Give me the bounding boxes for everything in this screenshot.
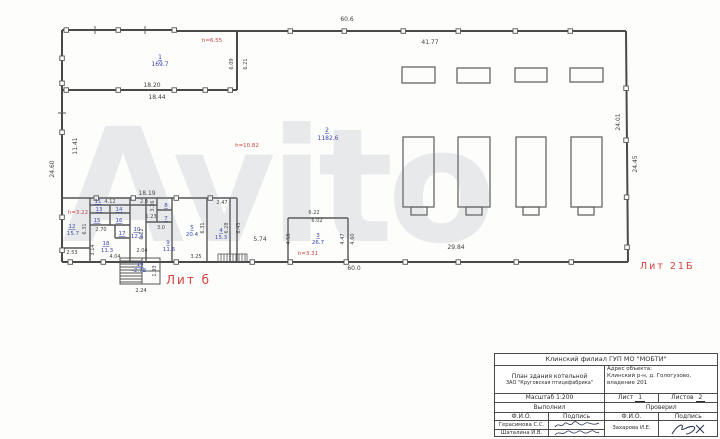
dim-label: 24.01 xyxy=(615,113,622,130)
doc-title-line1: План здания котельной xyxy=(512,373,588,381)
executor1-name: Герасимова С.С. xyxy=(495,421,549,430)
signature-label-left: Подпись xyxy=(549,413,605,421)
dim-label: 60.6 xyxy=(340,16,354,23)
dim-label: 2.24 xyxy=(135,288,146,294)
dim-label: 6.21 xyxy=(243,58,249,69)
fio-label-left: Ф.И.О. xyxy=(495,413,549,421)
fio-label-right: Ф.И.О. xyxy=(605,413,659,421)
executor2-name: Шаталина И.В. xyxy=(495,430,549,437)
signature-scribble-icon xyxy=(553,430,601,437)
performed-label: Выполнил xyxy=(495,403,605,413)
dim-label: 18.20 xyxy=(143,82,160,89)
lit-label-right: Лит 21Б xyxy=(640,261,694,272)
address-line1: Клинский р-н, д. Гологузово, xyxy=(607,373,691,380)
address-line2: владение 201 xyxy=(607,380,647,387)
dim-label: 24.45 xyxy=(632,155,639,172)
executor2-signature xyxy=(549,430,605,437)
address-label: Адрес объекта: xyxy=(607,366,652,373)
checker-name: Захарова И.Е. xyxy=(605,421,659,437)
title-block-address: Адрес объекта: Клинский р-н, д. Гологузо… xyxy=(605,366,718,394)
dim-label: 41.77 xyxy=(421,39,438,46)
room-area: 169.7 xyxy=(151,61,168,68)
checked-label: Проверил xyxy=(605,403,718,413)
signature-scribble-icon xyxy=(553,421,601,429)
checker-signature xyxy=(659,421,718,437)
signature-scribble-icon xyxy=(666,422,710,436)
dim-label: 6.09 xyxy=(229,58,235,69)
doc-title-line2: ЗАО "Круговская птицефабрика" xyxy=(506,380,593,386)
room-number: 1 xyxy=(158,54,162,61)
dim-label: 24.60 xyxy=(49,160,56,177)
title-block: Клинский филиал ГУП МО "МОБТИ" План здан… xyxy=(494,353,718,437)
watermark: Avito xyxy=(62,108,490,266)
sheets-value: 2 xyxy=(696,394,706,402)
sheets-label: Листов xyxy=(671,394,693,402)
sheet-cell: Лист 1 xyxy=(605,394,659,403)
sheet-value: 1 xyxy=(635,394,645,402)
height-label: h=6.55 xyxy=(202,38,223,44)
signature-label-right: Подпись xyxy=(659,413,718,421)
title-block-org: Клинский филиал ГУП МО "МОБТИ" xyxy=(495,354,717,366)
sheet-label: Лист xyxy=(618,394,633,402)
executor1-signature xyxy=(549,421,605,430)
scale-cell: Масштаб 1:200 xyxy=(495,394,605,403)
title-block-doc: План здания котельной ЗАО "Круговская пт… xyxy=(495,366,605,394)
sheets-cell: Листов 2 xyxy=(659,394,718,403)
scanned-floor-plan-page: Avito xyxy=(0,0,720,439)
